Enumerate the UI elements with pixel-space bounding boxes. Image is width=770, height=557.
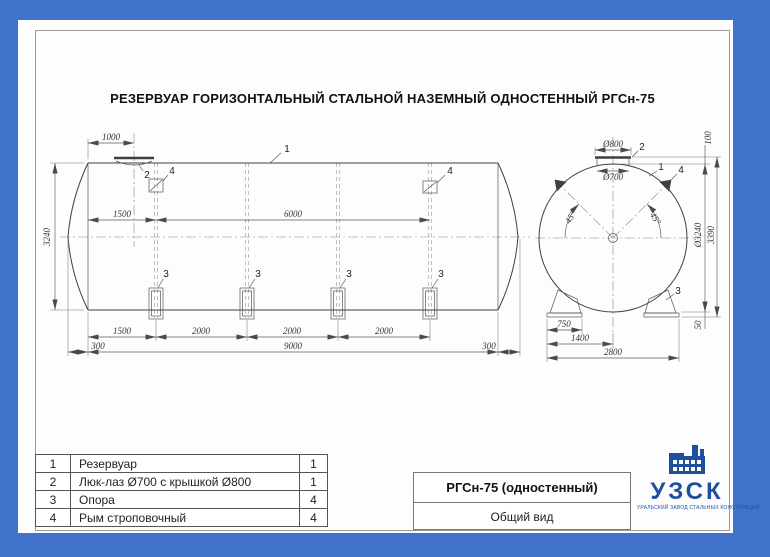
- dim-support-span: 2800: [604, 347, 623, 357]
- callout-tank-end: 1: [658, 162, 664, 173]
- callout-support-end: 3: [675, 286, 681, 297]
- support-axes: [155, 163, 432, 318]
- table-row: 3 Опора 4: [36, 491, 328, 509]
- company-logo: УЗСК УРАЛЬСКИЙ ЗАВОД СТАЛЬНЫХ КОНСТРУКЦИ…: [637, 442, 737, 511]
- supports-side: [149, 288, 437, 319]
- part-name: Опора: [71, 491, 300, 509]
- callout-support-1: 3: [163, 269, 169, 280]
- lifting-lugs-side: [149, 179, 437, 193]
- callout-support-3: 3: [346, 269, 352, 280]
- dim-base-plate: 750: [557, 319, 571, 329]
- part-qty: 4: [300, 509, 328, 527]
- dim-head-left: 300: [90, 341, 105, 351]
- dim-angle-left: 45°: [563, 209, 578, 225]
- callout-hatch: 2: [144, 170, 150, 181]
- page-background: { "title": "РЕЗЕРВУАР ГОРИЗОНТАЛЬНЫЙ СТА…: [0, 0, 770, 557]
- table-row: 4 Рым строповочный 4: [36, 509, 328, 527]
- end-dimensions: Ø800 Ø700 750 1400 2800 100 Ø32: [547, 131, 721, 362]
- manhole-side: [114, 158, 154, 165]
- part-number: 2: [36, 473, 71, 491]
- part-number: 3: [36, 491, 71, 509]
- dim-manhole-diameter: Ø700: [602, 172, 623, 182]
- dim-overall-height: 3390: [706, 226, 716, 246]
- part-name: Люк-лаз Ø700 с крышкой Ø800: [71, 473, 300, 491]
- dim-hatch-offset: 1000: [102, 132, 121, 142]
- part-number: 1: [36, 455, 71, 473]
- table-row: 1 Резервуар 1: [36, 455, 328, 473]
- company-abbr: УЗСК: [637, 479, 737, 505]
- callout-tank: 1: [284, 144, 290, 155]
- part-name: Резервуар: [71, 455, 300, 473]
- dim-chain-0: 1500: [113, 326, 132, 336]
- callout-lug-right: 4: [447, 166, 453, 177]
- dim-angle-right: 45°: [648, 210, 663, 226]
- technical-drawing: 1 2 4 4 3 3 3 3 1000 1500 6000: [30, 85, 730, 455]
- callout-lug-left: 4: [169, 166, 175, 177]
- dim-chain-2: 2000: [283, 326, 302, 336]
- callout-support-4: 3: [438, 269, 444, 280]
- callout-support-2: 3: [255, 269, 261, 280]
- factory-icon: [666, 442, 708, 474]
- dim-lug-span: 6000: [284, 209, 303, 219]
- callout-lug-end: 4: [678, 165, 684, 176]
- dim-support-center: 1400: [571, 333, 590, 343]
- view-name: Общий вид: [414, 503, 630, 530]
- tank-outline: [68, 163, 518, 310]
- part-qty: 1: [300, 455, 328, 473]
- model-name: РГСн-75 (одностенный): [414, 473, 630, 503]
- company-tagline: УРАЛЬСКИЙ ЗАВОД СТАЛЬНЫХ КОНСТРУКЦИЙ: [637, 505, 737, 511]
- dim-hatch-height: 100: [703, 131, 713, 145]
- part-qty: 4: [300, 491, 328, 509]
- dim-cover-diameter: Ø800: [602, 139, 623, 149]
- part-number: 4: [36, 509, 71, 527]
- parts-table: 1 Резервуар 1 2 Люк-лаз Ø700 с крышкой Ø…: [35, 454, 328, 527]
- part-qty: 1: [300, 473, 328, 491]
- end-view: 45° 45° 2 1 4 3 Ø800 Ø700: [535, 131, 721, 362]
- dim-cylinder-length: 9000: [284, 341, 303, 351]
- part-name: Рым строповочный: [71, 509, 300, 527]
- dim-shell-diameter-end: Ø3240: [693, 222, 703, 248]
- dim-head-right: 300: [481, 341, 496, 351]
- dim-shell-diameter-side: 3240: [42, 228, 52, 248]
- title-block: РГСн-75 (одностенный) Общий вид: [413, 472, 631, 530]
- dim-chain-3: 2000: [375, 326, 394, 336]
- dim-chain-1: 2000: [192, 326, 211, 336]
- callout-hatch-end: 2: [639, 142, 645, 153]
- dim-base-height: 50: [693, 320, 703, 330]
- table-row: 2 Люк-лаз Ø700 с крышкой Ø800 1: [36, 473, 328, 491]
- side-view: 1 2 4 4 3 3 3 3 1000 1500 6000: [42, 132, 530, 356]
- dim-lug-offset: 1500: [113, 209, 132, 219]
